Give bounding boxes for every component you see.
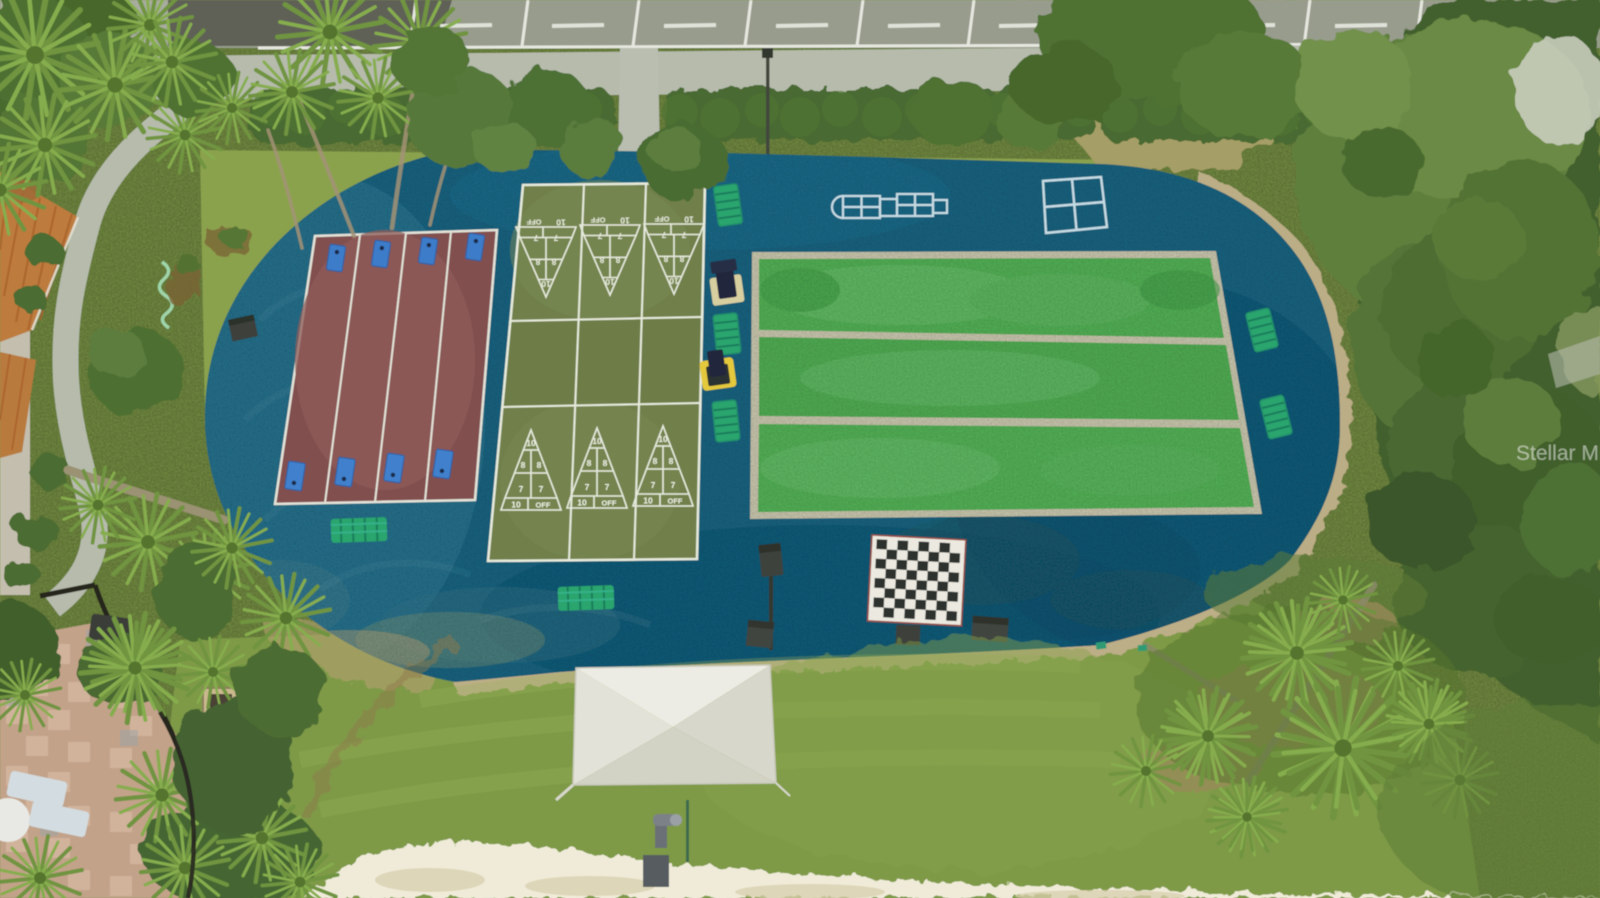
svg-text:Stellar MLS: Stellar MLS xyxy=(1516,442,1600,465)
